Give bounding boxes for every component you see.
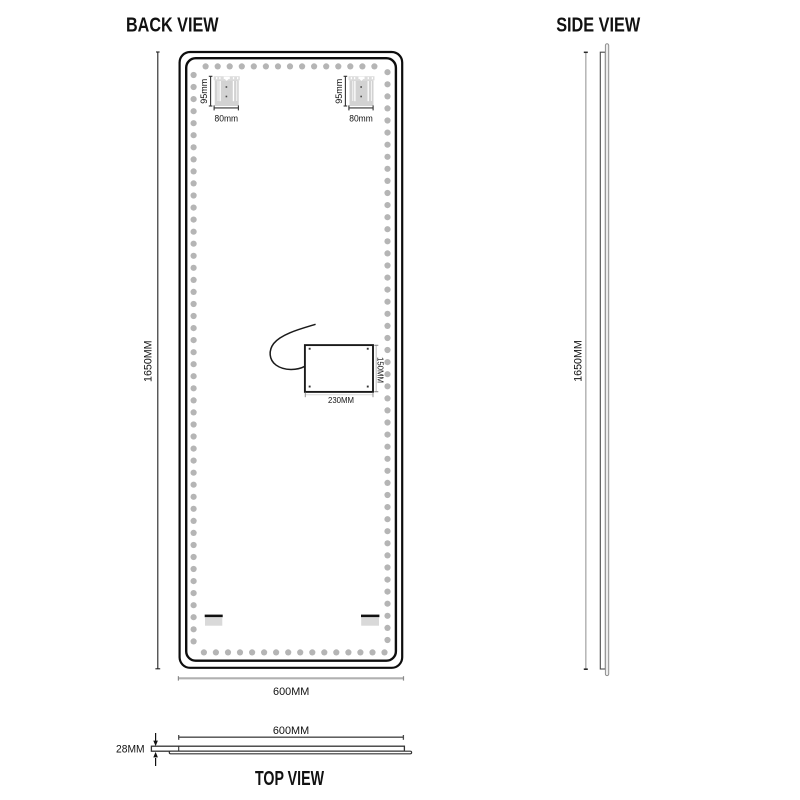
svg-text:BACK VIEW: BACK VIEW [126,14,219,37]
svg-text:230MM: 230MM [328,396,354,405]
svg-text:80mm: 80mm [215,113,239,124]
svg-text:80mm: 80mm [349,113,373,124]
svg-text:28MM: 28MM [116,744,145,756]
svg-text:1650MM: 1650MM [143,340,155,382]
svg-text:TOP VIEW: TOP VIEW [255,767,324,790]
svg-text:600MM: 600MM [273,686,309,698]
svg-text:95mm: 95mm [334,79,345,104]
svg-text:SIDE VIEW: SIDE VIEW [556,13,641,36]
svg-text:95mm: 95mm [199,79,210,104]
svg-text:1650MM: 1650MM [572,340,584,382]
svg-text:600MM: 600MM [273,725,309,737]
svg-text:150MM: 150MM [376,357,385,383]
